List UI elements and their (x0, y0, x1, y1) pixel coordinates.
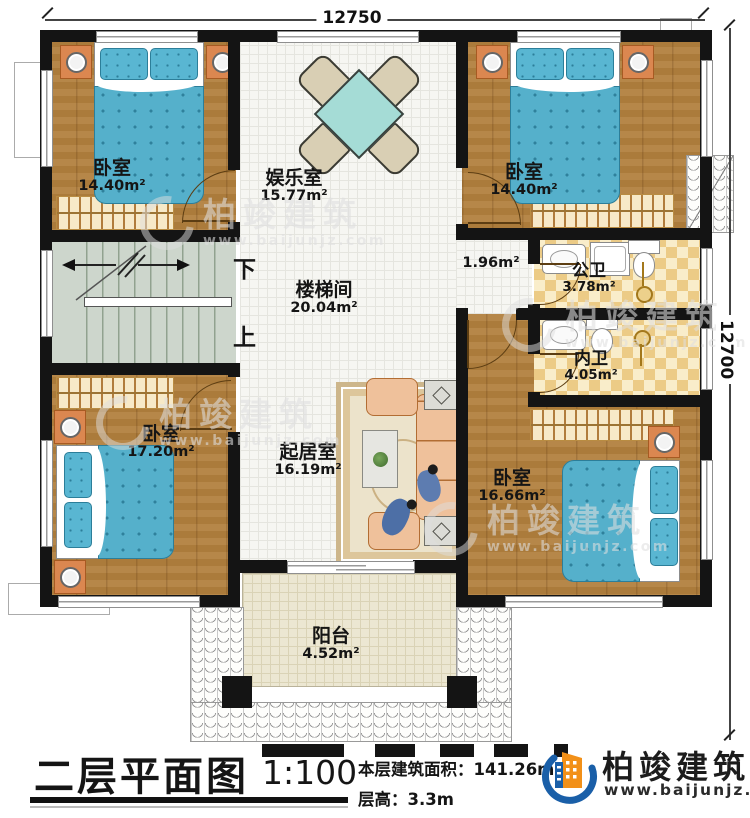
window (41, 440, 53, 547)
window (41, 250, 53, 337)
wall (228, 222, 240, 230)
room-area: 1.96m² (462, 256, 519, 272)
wall (528, 240, 540, 264)
room-name: 卧室 (478, 468, 545, 489)
balcony-column (447, 676, 477, 708)
room-name: 卧室 (490, 162, 557, 183)
shower-pipe (642, 262, 644, 286)
window (701, 248, 713, 305)
dimension-tick (41, 7, 53, 19)
pillow (150, 48, 198, 80)
room-label-inner-bath: 内卫 4.05m² (564, 350, 617, 383)
pillow (516, 48, 564, 80)
stairs-lower-flight (86, 304, 228, 363)
pillow (650, 518, 678, 566)
door-leaf (182, 220, 235, 222)
bed-duvet (98, 445, 174, 559)
shower-knob (634, 330, 651, 347)
window (277, 31, 419, 43)
floor-area-label: 本层建筑面积： (358, 760, 474, 779)
title-underline (30, 797, 348, 803)
room-area: 15.77m² (260, 189, 327, 205)
brand-website: www.baijunjz.com (604, 781, 750, 799)
floor-height-line: 层高：3.3m (358, 786, 454, 810)
toilet-bowl (633, 252, 655, 278)
wall (516, 308, 712, 320)
room-name: 卧室 (78, 158, 145, 179)
wall (40, 363, 240, 375)
roof-hatch-bottom (190, 702, 512, 742)
shower-pipe (640, 344, 642, 366)
room-label-stairwell: 楼梯间 20.04m² (290, 280, 357, 316)
room-label-entertainment: 娱乐室 15.77m² (260, 168, 327, 204)
room-name: 楼梯间 (290, 280, 357, 301)
nightstand (54, 410, 86, 444)
nightstand (648, 426, 680, 458)
room-area: 16.19m² (274, 463, 341, 479)
window (517, 31, 621, 43)
side-table (424, 380, 458, 410)
pillow (650, 466, 678, 514)
room-label-bedroom-br: 卧室 16.66m² (478, 468, 545, 504)
drawing-title: 二层平面图 (34, 744, 249, 802)
wall (528, 395, 712, 407)
title-underline-thin (30, 806, 348, 808)
window (505, 596, 663, 608)
room-area: 17.20m² (127, 445, 194, 461)
room-area: 14.40m² (78, 179, 145, 195)
wall (528, 320, 540, 354)
window (41, 70, 53, 167)
room-label-bedroom-tl: 卧室 14.40m² (78, 158, 145, 194)
room-label-living: 起居室 16.19m² (274, 442, 341, 478)
bed-sheet-fold (632, 461, 652, 579)
bed-duvet (562, 460, 640, 582)
room-label-bedroom-bl: 卧室 17.20m² (127, 424, 194, 460)
window (701, 60, 713, 157)
door-leaf (468, 222, 521, 224)
wall (456, 30, 468, 168)
wall (413, 560, 456, 573)
door-leaf (467, 320, 469, 368)
wall (228, 432, 240, 607)
balcony-column (222, 676, 252, 708)
room-name: 阳台 (302, 626, 359, 647)
dimension-value-right: 12700 (716, 315, 736, 384)
shower-knob (636, 286, 653, 303)
pillow (100, 48, 148, 80)
room-area: 14.40m² (490, 183, 557, 199)
side-table (424, 516, 458, 546)
room-area: 4.52m² (302, 647, 359, 663)
room-area: 16.66m² (478, 489, 545, 505)
floor-height-value: 3.3m (408, 790, 454, 809)
wall (456, 228, 712, 240)
coffee-table (362, 430, 398, 488)
armchair (366, 378, 418, 416)
wall (228, 363, 240, 377)
nightstand (60, 45, 92, 79)
wall (236, 560, 287, 573)
room-area: 3.78m² (562, 280, 615, 295)
room-name: 娱乐室 (260, 168, 327, 189)
drawing-scale: 1:100 (262, 753, 357, 792)
floor-plan-drawing: 下 上 (0, 0, 750, 818)
pillow (566, 48, 614, 80)
nightstand (54, 560, 86, 594)
room-name: 公卫 (562, 262, 615, 280)
pillow (64, 502, 92, 548)
window (96, 31, 198, 43)
niche-floor (456, 232, 532, 316)
room-label-balcony: 阳台 4.52m² (302, 626, 359, 662)
room-label-niche: 1.96m² (462, 256, 519, 272)
room-name: 卧室 (127, 424, 194, 445)
balcony-sliding-door (287, 561, 415, 574)
room-area: 4.05m² (564, 368, 617, 383)
room-area: 20.04m² (290, 301, 357, 317)
nightstand (622, 45, 654, 79)
room-label-bedroom-tr: 卧室 14.40m² (490, 162, 557, 198)
brand-logo-icon (538, 746, 598, 804)
nightstand (476, 45, 508, 79)
wall (456, 308, 468, 320)
room-label-public-bath: 公卫 3.78m² (562, 262, 615, 295)
wardrobe-hangers (56, 377, 174, 409)
stair-down-label: 下 (233, 250, 256, 284)
stair-up-label: 上 (233, 318, 256, 352)
sink (542, 320, 586, 350)
wall (40, 230, 240, 242)
room-name: 内卫 (564, 350, 617, 368)
dimension-tick (697, 7, 709, 19)
window (701, 328, 713, 390)
floor-area-line: 本层建筑面积：141.26m² (358, 756, 562, 780)
window (701, 460, 713, 560)
dimension-value-top: 12750 (316, 8, 387, 28)
pillow (64, 452, 92, 498)
floor-height-label: 层高： (358, 790, 408, 809)
wall (228, 30, 240, 170)
window (58, 596, 200, 608)
stairs-direction-arrow (58, 244, 208, 302)
room-name: 起居室 (274, 442, 341, 463)
